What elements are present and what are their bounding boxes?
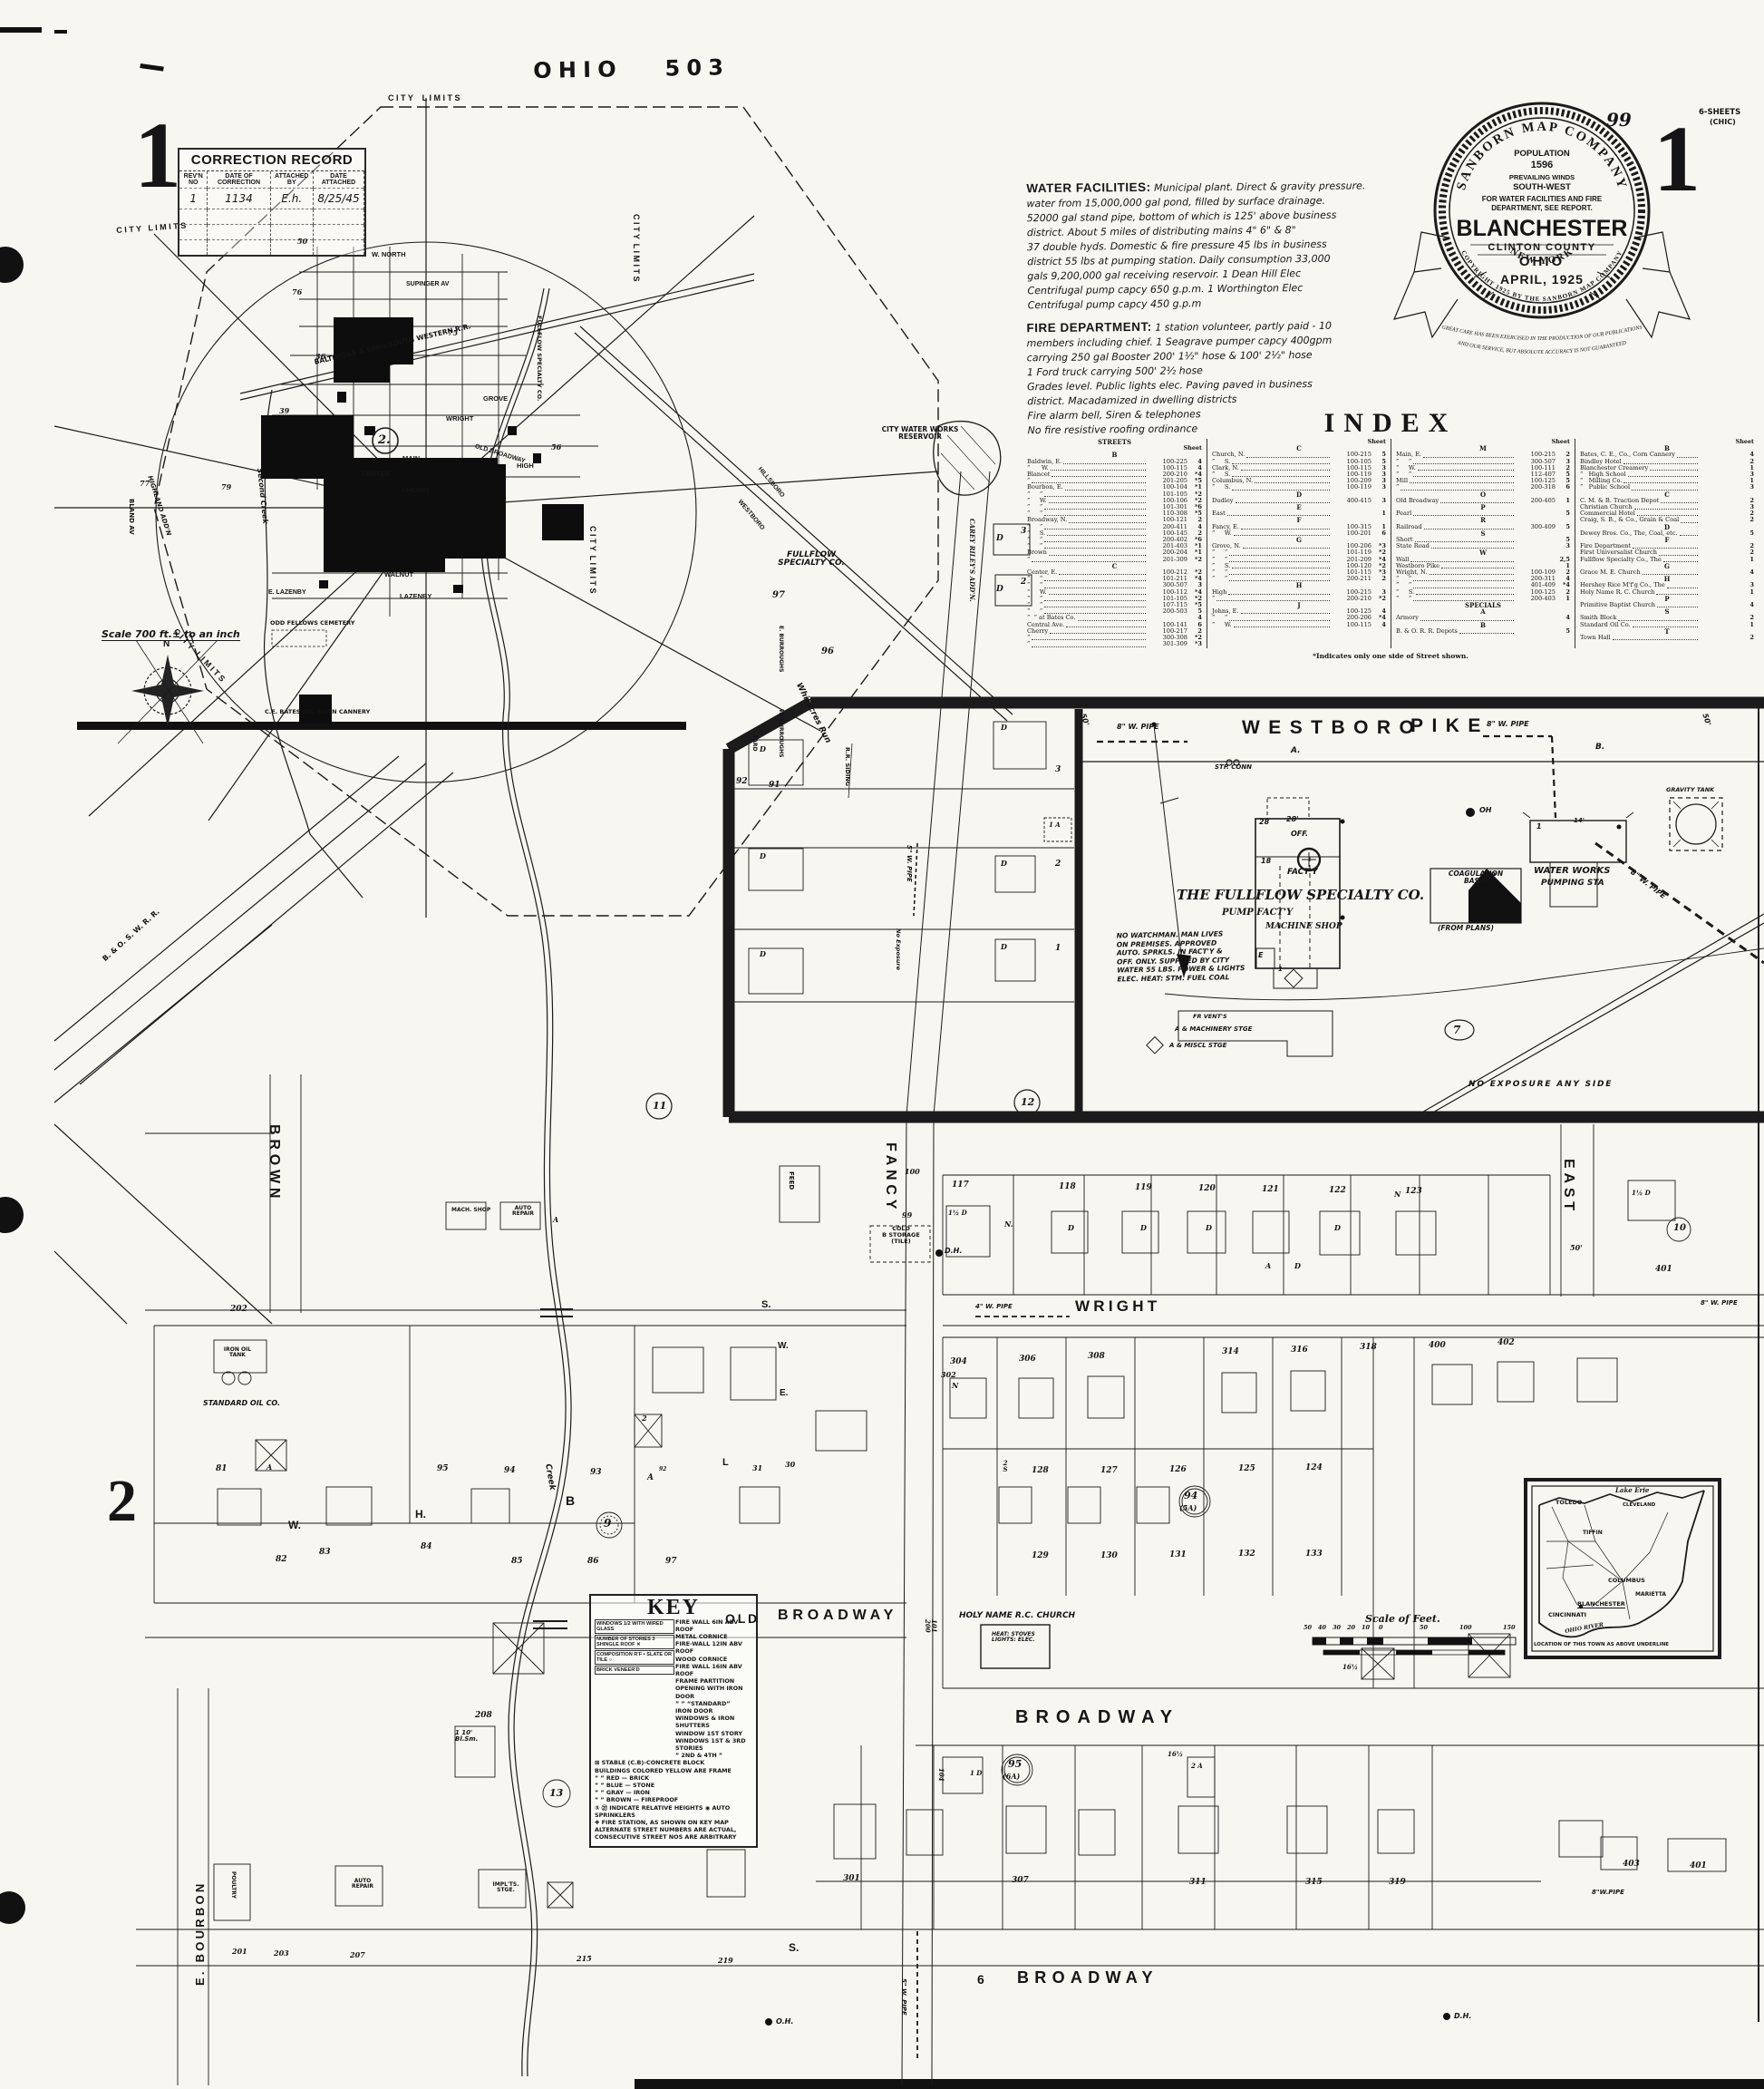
map-label: D (1068, 1224, 1074, 1231)
fullflow-panel (646, 703, 1764, 1119)
fullflow-note: NO WATCHMAN. MAN LIVESON PREMISES. APPRO… (1117, 929, 1272, 985)
map-label: B (566, 1494, 575, 1508)
map-label: OFF. (1291, 831, 1308, 838)
map-label: 12 (1021, 1097, 1034, 1108)
map-label: 28 (1259, 819, 1269, 826)
map-label: 131 (1169, 1551, 1187, 1559)
map-label: W. (288, 1520, 301, 1531)
correction-cell: 8/25/45 (313, 189, 363, 209)
map-label: D (1001, 860, 1007, 867)
map-label: HOLY NAME R.C. CHURCH (959, 1612, 1075, 1620)
map-label: 31 (752, 1464, 762, 1472)
map-label: 95 (437, 1465, 449, 1473)
map-label: BLAND AV (128, 499, 134, 535)
map-label: 2 (642, 1414, 647, 1422)
map-label: 208 (475, 1712, 492, 1720)
map-label: C I T Y L I M I T S (588, 526, 596, 594)
map-label: E. BOURBON (194, 1880, 207, 1986)
map-label: 16½ (1342, 1664, 1358, 1670)
map-label: 1 (1536, 823, 1542, 831)
correction-empty-row (179, 240, 364, 256)
map-label: WRIGHT (1075, 1298, 1160, 1315)
map-label: FR VENT'S (1193, 1014, 1227, 1020)
map-label: GRAVITY TANK (1666, 787, 1714, 793)
water-facilities-report: WATER FACILITIES: Municipal plant. Direc… (1026, 178, 1417, 313)
map-label: 101 200 (924, 1619, 937, 1633)
map-label: 13 (549, 1788, 563, 1799)
map-label: WRIGHT (446, 415, 473, 423)
map-label: S. (789, 1942, 799, 1954)
map-label: 50 (297, 238, 307, 245)
map-label: E (1258, 952, 1263, 959)
map-label: OLD (725, 1612, 760, 1626)
map-label: 5" W. PIPE (906, 845, 912, 882)
map-label: 306 (1019, 1355, 1036, 1364)
map-label: 117 (952, 1181, 969, 1190)
svg-text:SOUTH-WEST: SOUTH-WEST (1513, 182, 1571, 192)
map-label: 2 S (999, 1460, 1012, 1473)
svg-text:OHIO: OHIO (1519, 254, 1565, 269)
map-label: S. (761, 1300, 771, 1311)
map-label: 126 (1169, 1466, 1187, 1474)
key-line: WINDOWS 1ST & 3RD STORIES (675, 1737, 752, 1752)
map-label: 104 (938, 1768, 945, 1782)
map-label: (5A) (1179, 1504, 1197, 1511)
map-label: (CHIC) (1710, 119, 1736, 126)
map-label: BLANCHESTER (1577, 1601, 1625, 1608)
map-label: 8" W. PIPE (1701, 1300, 1738, 1307)
map-label: C.E. BATES CO. CORN CANNERY (265, 709, 370, 715)
correction-cell (179, 240, 208, 256)
key-box: BRICK VENEER'D (595, 1666, 674, 1675)
map-label: 94 (504, 1467, 516, 1475)
map-label: 400 (1429, 1342, 1446, 1350)
map-label: IMPL'TS. STGE. (489, 1882, 522, 1894)
map-label: 50 (1420, 1625, 1428, 1631)
map-label: 39 (279, 407, 289, 414)
map-label: 128 (1032, 1467, 1049, 1475)
map-label: C I T Y L I M I T S (632, 214, 640, 282)
wright-broadway-block (916, 1337, 1764, 1745)
map-label: WALNUT (384, 571, 413, 578)
map-label: 40 (1318, 1625, 1326, 1631)
map-label: 93 (590, 1469, 602, 1477)
map-label: 122 (1329, 1187, 1346, 1195)
map-label: 301 (843, 1875, 860, 1883)
map-label: FULLFLOW SPECIALTY CO. (761, 551, 861, 568)
index-title: INDEX (1023, 410, 1759, 437)
map-label: 14' (1574, 818, 1585, 824)
map-label: 92 (659, 1467, 666, 1472)
map-label: COLD B STORAGE (TILE) (872, 1226, 930, 1244)
map-label: 2 (1021, 578, 1026, 587)
map-label: 119 (1135, 1184, 1152, 1192)
map-label: PUMPING STA (1541, 879, 1604, 888)
map-label: GROVE (483, 395, 508, 403)
map-label: NO EXPOSURE ANY SIDE (1468, 1081, 1613, 1089)
index-entry: ”301-309*3 (1027, 641, 1202, 647)
map-label: CHERRY (402, 487, 430, 494)
map-label: 319 (1389, 1879, 1406, 1887)
map-label: 56 (551, 443, 561, 451)
map-label: E. BURROUGHS (778, 626, 783, 672)
key-line: ” 2ND & 4TH ” (675, 1752, 752, 1759)
map-label: 130 (1100, 1552, 1118, 1560)
map-label: 96 (821, 647, 834, 657)
key-line: ALTERNATE STREET NUMBERS ARE ACTUAL, (595, 1826, 752, 1833)
key-box: COMPOSITION R'F ▪ SLATE OR TILE ○ (595, 1650, 674, 1665)
correction-cell: 1134 (208, 189, 270, 209)
map-label: 1½ D (1632, 1190, 1651, 1196)
map-label: N (952, 1382, 958, 1389)
map-label: COAGULATION BASIN (1434, 870, 1517, 885)
key-line: OPENING WITH IRON DOOR (675, 1685, 752, 1699)
map-label: 30 (785, 1461, 795, 1468)
key-line: ⑤ ㉗ INDICATE RELATIVE HEIGHTS ◉ AUTO SPR… (595, 1804, 752, 1819)
map-label: 6 (977, 1973, 984, 1987)
map-label: 95 (1008, 1759, 1022, 1770)
map-label: 100 (905, 1168, 920, 1175)
map-label: 36 (315, 353, 325, 360)
map-label: 2 A (1191, 1763, 1203, 1769)
map-label: D (996, 535, 1003, 543)
map-label: 219 (718, 1957, 733, 1964)
map-label: 2 (107, 1476, 137, 1527)
map-label: A & MACHINERY STGE (1175, 1026, 1252, 1033)
map-label: TOLEDO (1556, 1500, 1582, 1506)
index-entry: Town Hall2 (1580, 635, 1754, 641)
key-line: FIRE-WALL 12IN ABV ROOF (675, 1640, 752, 1655)
map-label: 6-SHEETS (1699, 109, 1740, 117)
map-label: MACHINE SHOP (1265, 923, 1342, 931)
old-broadway-block (145, 1074, 930, 1807)
map-label: AUTO REPAIR (346, 1879, 379, 1890)
map-label: STANDARD OIL CO. (203, 1400, 280, 1407)
map-label: 0 (1379, 1625, 1383, 1631)
map-label: CARD (751, 734, 757, 752)
correction-col-header: REV'N NO (179, 171, 208, 189)
map-label: BROADWAY (1017, 1969, 1158, 1987)
map-label: 311 (1189, 1879, 1207, 1887)
map-label: D (1001, 724, 1007, 731)
map-label: 207 (350, 1951, 365, 1958)
map-key: KEY WINDOWS 1/2 WITH WIRED GLASSNUMBER O… (589, 1594, 758, 1848)
map-label: 1 (1278, 967, 1283, 973)
index-entry: B. & O. R. R. Depots5 (1396, 628, 1570, 635)
key-line: ” ” BLUE — STONE (595, 1782, 752, 1789)
map-label: 8"W.PIPE (1592, 1890, 1624, 1896)
map-label: 99 (1606, 111, 1632, 130)
map-label: 1 D (970, 1770, 982, 1776)
map-label: MACH. SHOP (451, 1208, 490, 1213)
map-label: 215 (577, 1955, 592, 1962)
correction-cell (208, 225, 270, 240)
map-label: (FROM PLANS) (1438, 925, 1494, 932)
map-label: 1 (1653, 120, 1701, 199)
map-label: 16½ (1168, 1751, 1183, 1757)
map-label: 318 (1360, 1344, 1377, 1352)
map-label: 124 (1305, 1464, 1323, 1472)
map-label: IRON OIL TANK (218, 1347, 257, 1359)
index-column-3: Sheet MMain, E.100-2152” ”300-5073” W.10… (1391, 439, 1575, 648)
map-label: 86 (587, 1558, 599, 1566)
map-label: D (1206, 1224, 1212, 1231)
sanborn-map-sheet: SANBORN MAP COMPANY COPYRIGHT 1925 BY TH… (0, 0, 1764, 2089)
map-label: 2 (1055, 860, 1061, 869)
correction-cell (313, 209, 363, 225)
map-label: 1 (1055, 945, 1061, 953)
map-label: BROADWAY (1015, 1708, 1179, 1727)
map-label: 9 (604, 1518, 611, 1530)
correction-cell: E.h. (270, 189, 313, 209)
key-box: WINDOWS 1/2 WITH WIRED GLASS (595, 1619, 674, 1634)
map-label: R.R. SIDING (844, 747, 850, 786)
map-label: 1 (134, 116, 181, 196)
correction-cell: 1 (179, 189, 208, 209)
map-label: 100 (1459, 1625, 1472, 1631)
correction-record-title: CORRECTION RECORD (179, 150, 364, 171)
map-label: 81 (216, 1465, 228, 1473)
map-label: LOCATION OF THIS TOWN AS ABOVE UNDERLINE (1534, 1643, 1669, 1648)
map-label: 20 (1347, 1625, 1355, 1631)
map-label: BROWN (266, 1124, 281, 1202)
map-linework: SANBORN MAP COMPANY COPYRIGHT 1925 BY TH… (0, 0, 1764, 2089)
correction-empty-row (179, 209, 364, 225)
key-line: FIRE WALL 16IN ABV ROOF (675, 1663, 752, 1677)
map-label: 129 (1032, 1552, 1049, 1560)
key-line: METAL CORNICE (675, 1633, 752, 1640)
map-label: 314 (1222, 1348, 1239, 1356)
map-label: EAST (1560, 1159, 1575, 1215)
svg-text:PREVAILING WINDS: PREVAILING WINDS (1509, 173, 1575, 181)
map-label: D (996, 586, 1003, 594)
map-label: TIFFIN (1583, 1530, 1603, 1536)
map-label: 11 (653, 1101, 666, 1112)
map-label: MAIN (402, 455, 420, 462)
map-label: 30 (1333, 1625, 1341, 1631)
map-label: 133 (1305, 1550, 1323, 1559)
map-label: PIKE (1410, 716, 1489, 736)
map-label: WATER WORKS (1534, 867, 1610, 877)
map-label: COLUMBUS (1608, 1578, 1645, 1584)
map-label: O.H. (776, 2018, 793, 2026)
map-label: 76 (292, 288, 302, 296)
correction-cell (208, 240, 270, 256)
correction-record: CORRECTION RECORD REV'N NODATE OF CORREC… (178, 148, 366, 257)
map-label: HEAT: STOVES LIGHTS: ELEC. (992, 1632, 1035, 1644)
map-label: D (760, 950, 766, 957)
wright-row (145, 1124, 1764, 1326)
map-label: 118 (1059, 1183, 1076, 1191)
map-label: 77 (140, 480, 150, 487)
correction-cell (270, 209, 313, 225)
map-label: D (1294, 1262, 1301, 1269)
map-label: MARIETTA (1635, 1592, 1666, 1598)
map-label: 304 (950, 1358, 967, 1366)
key-line: WOOD CORNICE (675, 1656, 752, 1663)
street-index: INDEX STREETS Sheet BBaldwin, E.100-2254… (1023, 410, 1759, 660)
map-label: A (553, 1216, 558, 1223)
map-label: H. (415, 1509, 426, 1521)
map-label: A (647, 1474, 654, 1482)
map-label: FEED (788, 1171, 794, 1190)
index-letter-heading: P (1396, 504, 1570, 510)
index-column-4: Sheet BBates, C. E., Co., Corn Cannery4B… (1575, 439, 1759, 648)
map-label: 308 (1088, 1353, 1105, 1361)
map-label: CINCINNATI (1548, 1612, 1586, 1618)
map-label: 201 (232, 1948, 247, 1955)
key-right-lines: FIRE WALL 6IN ABV ROOFMETAL CORNICEFIRE-… (675, 1618, 752, 1760)
map-label: AUTO REPAIR (508, 1206, 538, 1218)
key-line: CONSECUTIVE STREET NOS ARE ARBITRARY (595, 1833, 752, 1841)
correction-cell (208, 209, 270, 225)
map-label: 50' (1570, 1244, 1583, 1251)
map-label: ODD FELLOWS CEMETERY (270, 620, 355, 627)
map-label: 202 (230, 1306, 247, 1314)
map-label: E. (780, 1389, 788, 1399)
map-label: 83 (319, 1549, 331, 1557)
index-letter-heading: S (1396, 530, 1570, 537)
map-label: LAZENBY (400, 593, 431, 600)
map-label: 28' (1286, 816, 1299, 823)
map-label: D (760, 852, 766, 860)
key-line: ✚ FIRE STATION, AS SHOWN ON KEY MAP (595, 1819, 752, 1826)
overview-map (54, 98, 1013, 2076)
map-label: HIGH (517, 462, 534, 470)
map-label: Lake Erie (1615, 1487, 1649, 1493)
map-label: 4" W. PIPE (975, 1304, 1013, 1310)
svg-text:AND OUR SERVICE, BUT ABSOLUTE: AND OUR SERVICE, BUT ABSOLUTE ACCURACY I… (1456, 340, 1627, 355)
map-label: 8" W. PIPE (1117, 724, 1159, 731)
svg-text:APRIL, 1925: APRIL, 1925 (1500, 272, 1584, 287)
key-line: IRON DOOR (675, 1707, 752, 1715)
index-column-2: Sheet CChurch, N.100-2155” S.100-1055Cla… (1207, 439, 1391, 648)
map-label: 10 (1362, 1625, 1370, 1631)
map-label: B. (1595, 743, 1604, 752)
map-label: 91 (769, 782, 780, 790)
map-label: N. (1004, 1220, 1013, 1228)
map-label: 401 (1655, 1266, 1672, 1274)
map-label: PUMP FACT'Y (1222, 908, 1293, 918)
map-label: 403 (1623, 1861, 1640, 1869)
map-label: 123 (1405, 1188, 1422, 1196)
map-label: CAREY RILEY'S ADD'N. (969, 519, 975, 602)
water-facilities-heading: WATER FACILITIES: (1026, 180, 1150, 195)
map-label: 8" W. PIPE (1487, 721, 1529, 728)
map-label: 401 (1690, 1862, 1707, 1870)
map-label: 7 (1453, 1025, 1460, 1036)
correction-row: 11134E.h.8/25/45 (179, 189, 364, 209)
index-letter-heading: E (1212, 504, 1386, 510)
map-label: 5" W. PIPE (900, 1978, 906, 2016)
map-label: (6A) (1003, 1773, 1020, 1780)
index-letter-heading: W (1396, 549, 1570, 556)
svg-text:1596: 1596 (1531, 160, 1553, 170)
map-label: 307 (1012, 1877, 1029, 1885)
map-label: FULLFLOW SPECIALTY CO. (536, 316, 542, 402)
svg-text:BLANCHESTER: BLANCHESTER (1457, 216, 1628, 241)
map-label: D (1001, 943, 1007, 950)
correction-empty-row (179, 225, 364, 240)
map-label: FACT'Y (1287, 869, 1318, 877)
map-label: A (267, 1463, 272, 1471)
map-label: OHIO 503 (533, 56, 730, 83)
map-label: 132 (1238, 1550, 1255, 1559)
map-label: 316 (1291, 1346, 1308, 1355)
map-label: 2. (378, 434, 391, 447)
map-label: WESTBORO (1242, 718, 1422, 738)
map-label: OH (1479, 807, 1492, 814)
map-label: 402 (1497, 1339, 1515, 1347)
index-streets-heading: STREETS (1027, 439, 1202, 445)
map-label: 3 (1055, 766, 1061, 774)
svg-text:DEPARTMENT, SEE REPORT.: DEPARTMENT, SEE REPORT. (1491, 204, 1592, 212)
map-label: 203 (274, 1949, 289, 1957)
index-footnote: *Indicates only one side of Street shown… (1023, 652, 1759, 660)
map-label: W. NORTH (372, 251, 406, 258)
map-label: A. (1291, 747, 1301, 755)
map-label: 2 (1490, 873, 1496, 881)
map-label: N (1394, 1190, 1401, 1198)
sanborn-seal: SANBORN MAP COMPANY COPYRIGHT 1925 BY TH… (1394, 103, 1690, 355)
map-label: 82 (276, 1556, 287, 1564)
map-label: 3 (1021, 528, 1026, 536)
map-label: BROADWAY (778, 1608, 897, 1624)
correction-col-header: DATE ATTACHED (313, 171, 363, 189)
map-label: 99 (902, 1211, 912, 1219)
map-label: A & MISCL STGE (1169, 1043, 1226, 1049)
map-label: C I T Y L I M I T S (388, 94, 460, 102)
map-label: E. LAZENBY (268, 589, 306, 596)
map-label: 10 (1673, 1224, 1686, 1234)
map-label: 120 (1198, 1185, 1216, 1193)
key-line: ” ” “STANDARD” (675, 1700, 752, 1707)
map-label: CITY WATER WORKS RESERVOIR (870, 426, 970, 441)
svg-text:GREAT CARE HAS BEEN EXERCISED: GREAT CARE HAS BEEN EXERCISED IN THE PRO… (1441, 325, 1643, 342)
map-label: L (722, 1458, 729, 1469)
map-label: SUPINGER AV (406, 281, 449, 287)
key-line: WINDOW 1ST STORY (675, 1730, 752, 1737)
map-label: 1 A (1049, 821, 1061, 828)
key-line: ” ” RED — BRICK (595, 1774, 752, 1782)
index-letter-heading: A (1396, 608, 1570, 615)
key-line: BUILDINGS COLORED YELLOW ARE FRAME (595, 1767, 752, 1774)
map-label: THE FULLFLOW SPECIALTY CO. (1177, 889, 1424, 903)
map-label: 75 (448, 329, 458, 336)
map-label: N (163, 640, 170, 650)
map-label: STP. CONN (1215, 764, 1252, 771)
map-label: 127 (1100, 1467, 1118, 1475)
fire-department-heading: FIRE DEPARTMENT: (1026, 320, 1151, 335)
map-label: D.H. (945, 1248, 962, 1255)
map-label: Scale of Feet. (1365, 1614, 1440, 1625)
key-line: ” ” GRAY — IRON (595, 1789, 752, 1796)
map-label: W. (778, 1342, 789, 1352)
map-label: CLEVELAND (1623, 1503, 1655, 1509)
map-label: Scale 700 ft.± to an inch (102, 629, 240, 641)
map-label: 94 (1184, 1491, 1197, 1501)
key-bottom-lines: ⊠ STABLE (C.B)-CONCRETE BLOCKBUILDINGS C… (595, 1759, 752, 1841)
map-label: D (760, 745, 766, 753)
map-label: 84 (421, 1543, 432, 1551)
map-label: 97 (772, 591, 785, 601)
correction-col-header: ATTACHED BY (270, 171, 313, 189)
map-label: POULTRY (230, 1871, 236, 1899)
map-label: 302 (941, 1371, 956, 1378)
map-label: 97 (665, 1558, 677, 1566)
correction-col-header: DATE OF CORRECTION (208, 171, 270, 189)
key-line: ⊠ STABLE (C.B)-CONCRETE BLOCK (595, 1759, 752, 1766)
